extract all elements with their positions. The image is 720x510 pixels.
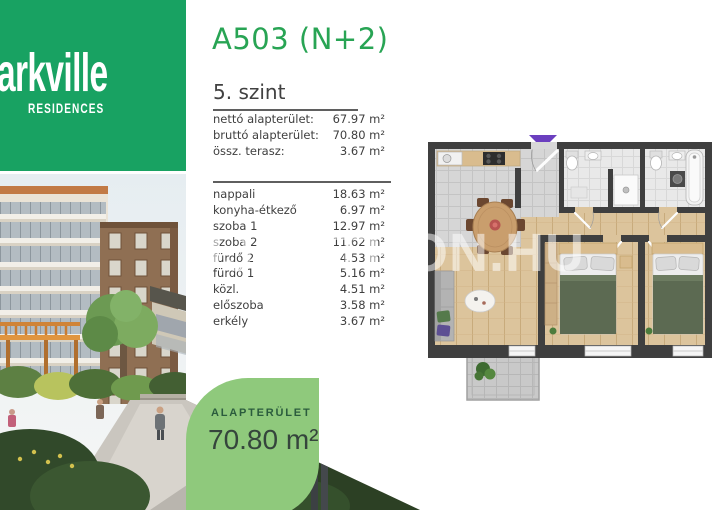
summary-value: 67.97 m² (333, 112, 385, 128)
room-row: előszoba 3.58 m² (213, 298, 391, 314)
room-value: 4.51 m² (340, 282, 385, 298)
room-row: fürdő 1 5.16 m² (213, 266, 391, 282)
coffee-table (465, 290, 495, 312)
area-badge-value: 70.80 m² (208, 424, 319, 456)
summary-value: 70.80 m² (333, 128, 385, 144)
entry-floor (521, 149, 559, 217)
room-label: nappali (213, 187, 255, 203)
room-label: szoba 1 (213, 219, 257, 235)
unit-title: A503 (N+2) (212, 22, 388, 56)
summary-label: nettó alapterület: (213, 112, 314, 128)
room-value: 3.58 m² (340, 298, 385, 314)
area-badge-label: ALAPTERÜLET (211, 407, 311, 419)
floor-label: 5. szint (213, 80, 358, 111)
room-row: szoba 1 12.97 m² (213, 219, 391, 235)
room-value: 6.97 m² (340, 203, 385, 219)
brand-logo-block: arkville RESIDENCES (0, 0, 186, 171)
area-summary-table: nettó alapterület: 67.97 m² bruttó alapt… (213, 112, 385, 160)
room-value: 18.63 m² (333, 187, 385, 203)
room-value: 12.97 m² (333, 219, 385, 235)
room-label: közl. (213, 282, 239, 298)
sofa (435, 271, 454, 341)
room-label: fürdő 1 (213, 266, 254, 282)
brochure-page: arkville RESIDENCES A503 (N+2) 5. szint … (0, 0, 720, 510)
room-label: szoba 2 (213, 235, 257, 251)
room-value: 11.62 m² (333, 235, 385, 251)
room-label: előszoba (213, 298, 264, 314)
bedroom-2 (646, 243, 704, 335)
floor-plan (425, 135, 717, 403)
left-building (0, 186, 108, 386)
room-row: nappali 18.63 m² (213, 187, 391, 203)
summary-row: nettó alapterület: 67.97 m² (213, 112, 385, 128)
room-value: 5.16 m² (340, 266, 385, 282)
room-value: 3.67 m² (340, 314, 385, 330)
brand-name: arkville (0, 42, 107, 104)
room-value: 4.53 m² (340, 251, 385, 267)
summary-value: 3.67 m² (340, 144, 385, 160)
room-row: közl. 4.51 m² (213, 282, 391, 298)
floor-plan-drawing (425, 135, 717, 403)
summary-label: össz. terasz: (213, 144, 285, 160)
room-row: fürdő 2 4.53 m² (213, 251, 391, 267)
room-label: fürdő 2 (213, 251, 254, 267)
room-list-table: nappali 18.63 m² konyha-étkező 6.97 m² s… (213, 181, 391, 330)
room-row: erkély 3.67 m² (213, 314, 391, 330)
kitchen-counter (437, 151, 520, 166)
room-label: konyha-étkező (213, 203, 297, 219)
summary-label: bruttó alapterület: (213, 128, 319, 144)
summary-row: össz. terasz: 3.67 m² (213, 144, 385, 160)
room-label: erkély (213, 314, 248, 330)
room-row: konyha-étkező 6.97 m² (213, 203, 391, 219)
summary-row: bruttó alapterület: 70.80 m² (213, 128, 385, 144)
brand-subtitle: RESIDENCES (28, 100, 104, 116)
area-badge: ALAPTERÜLET 70.80 m² (186, 378, 319, 510)
room-row: szoba 2 11.62 m² (213, 235, 391, 251)
